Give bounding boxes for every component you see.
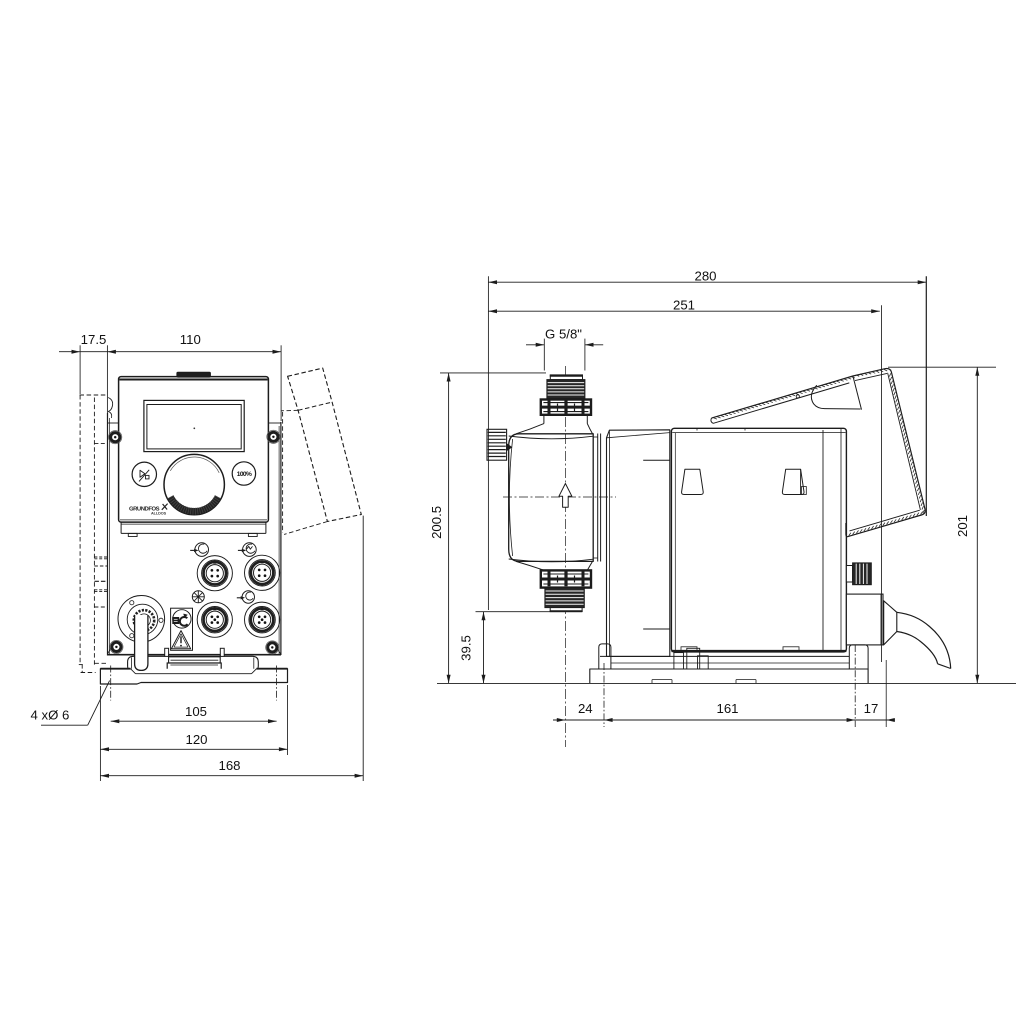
svg-text:G 5/8": G 5/8"	[545, 327, 582, 342]
svg-text:39.5: 39.5	[458, 635, 473, 661]
svg-text:201: 201	[955, 515, 970, 537]
svg-text:280: 280	[694, 268, 716, 283]
svg-text:161: 161	[716, 701, 738, 716]
svg-text:251: 251	[673, 297, 695, 312]
svg-text:110: 110	[180, 332, 201, 347]
svg-text:100%: 100%	[237, 471, 252, 478]
svg-text:4 xØ 6: 4 xØ 6	[31, 707, 70, 722]
svg-text:24: 24	[578, 701, 593, 716]
svg-text:105: 105	[185, 704, 207, 719]
svg-text:168: 168	[218, 758, 240, 773]
svg-text:17: 17	[864, 701, 879, 716]
svg-text:17.5: 17.5	[81, 332, 107, 347]
svg-text:200.5: 200.5	[429, 506, 444, 539]
svg-text:ALLDOS: ALLDOS	[151, 511, 167, 515]
svg-text:120: 120	[185, 732, 207, 747]
